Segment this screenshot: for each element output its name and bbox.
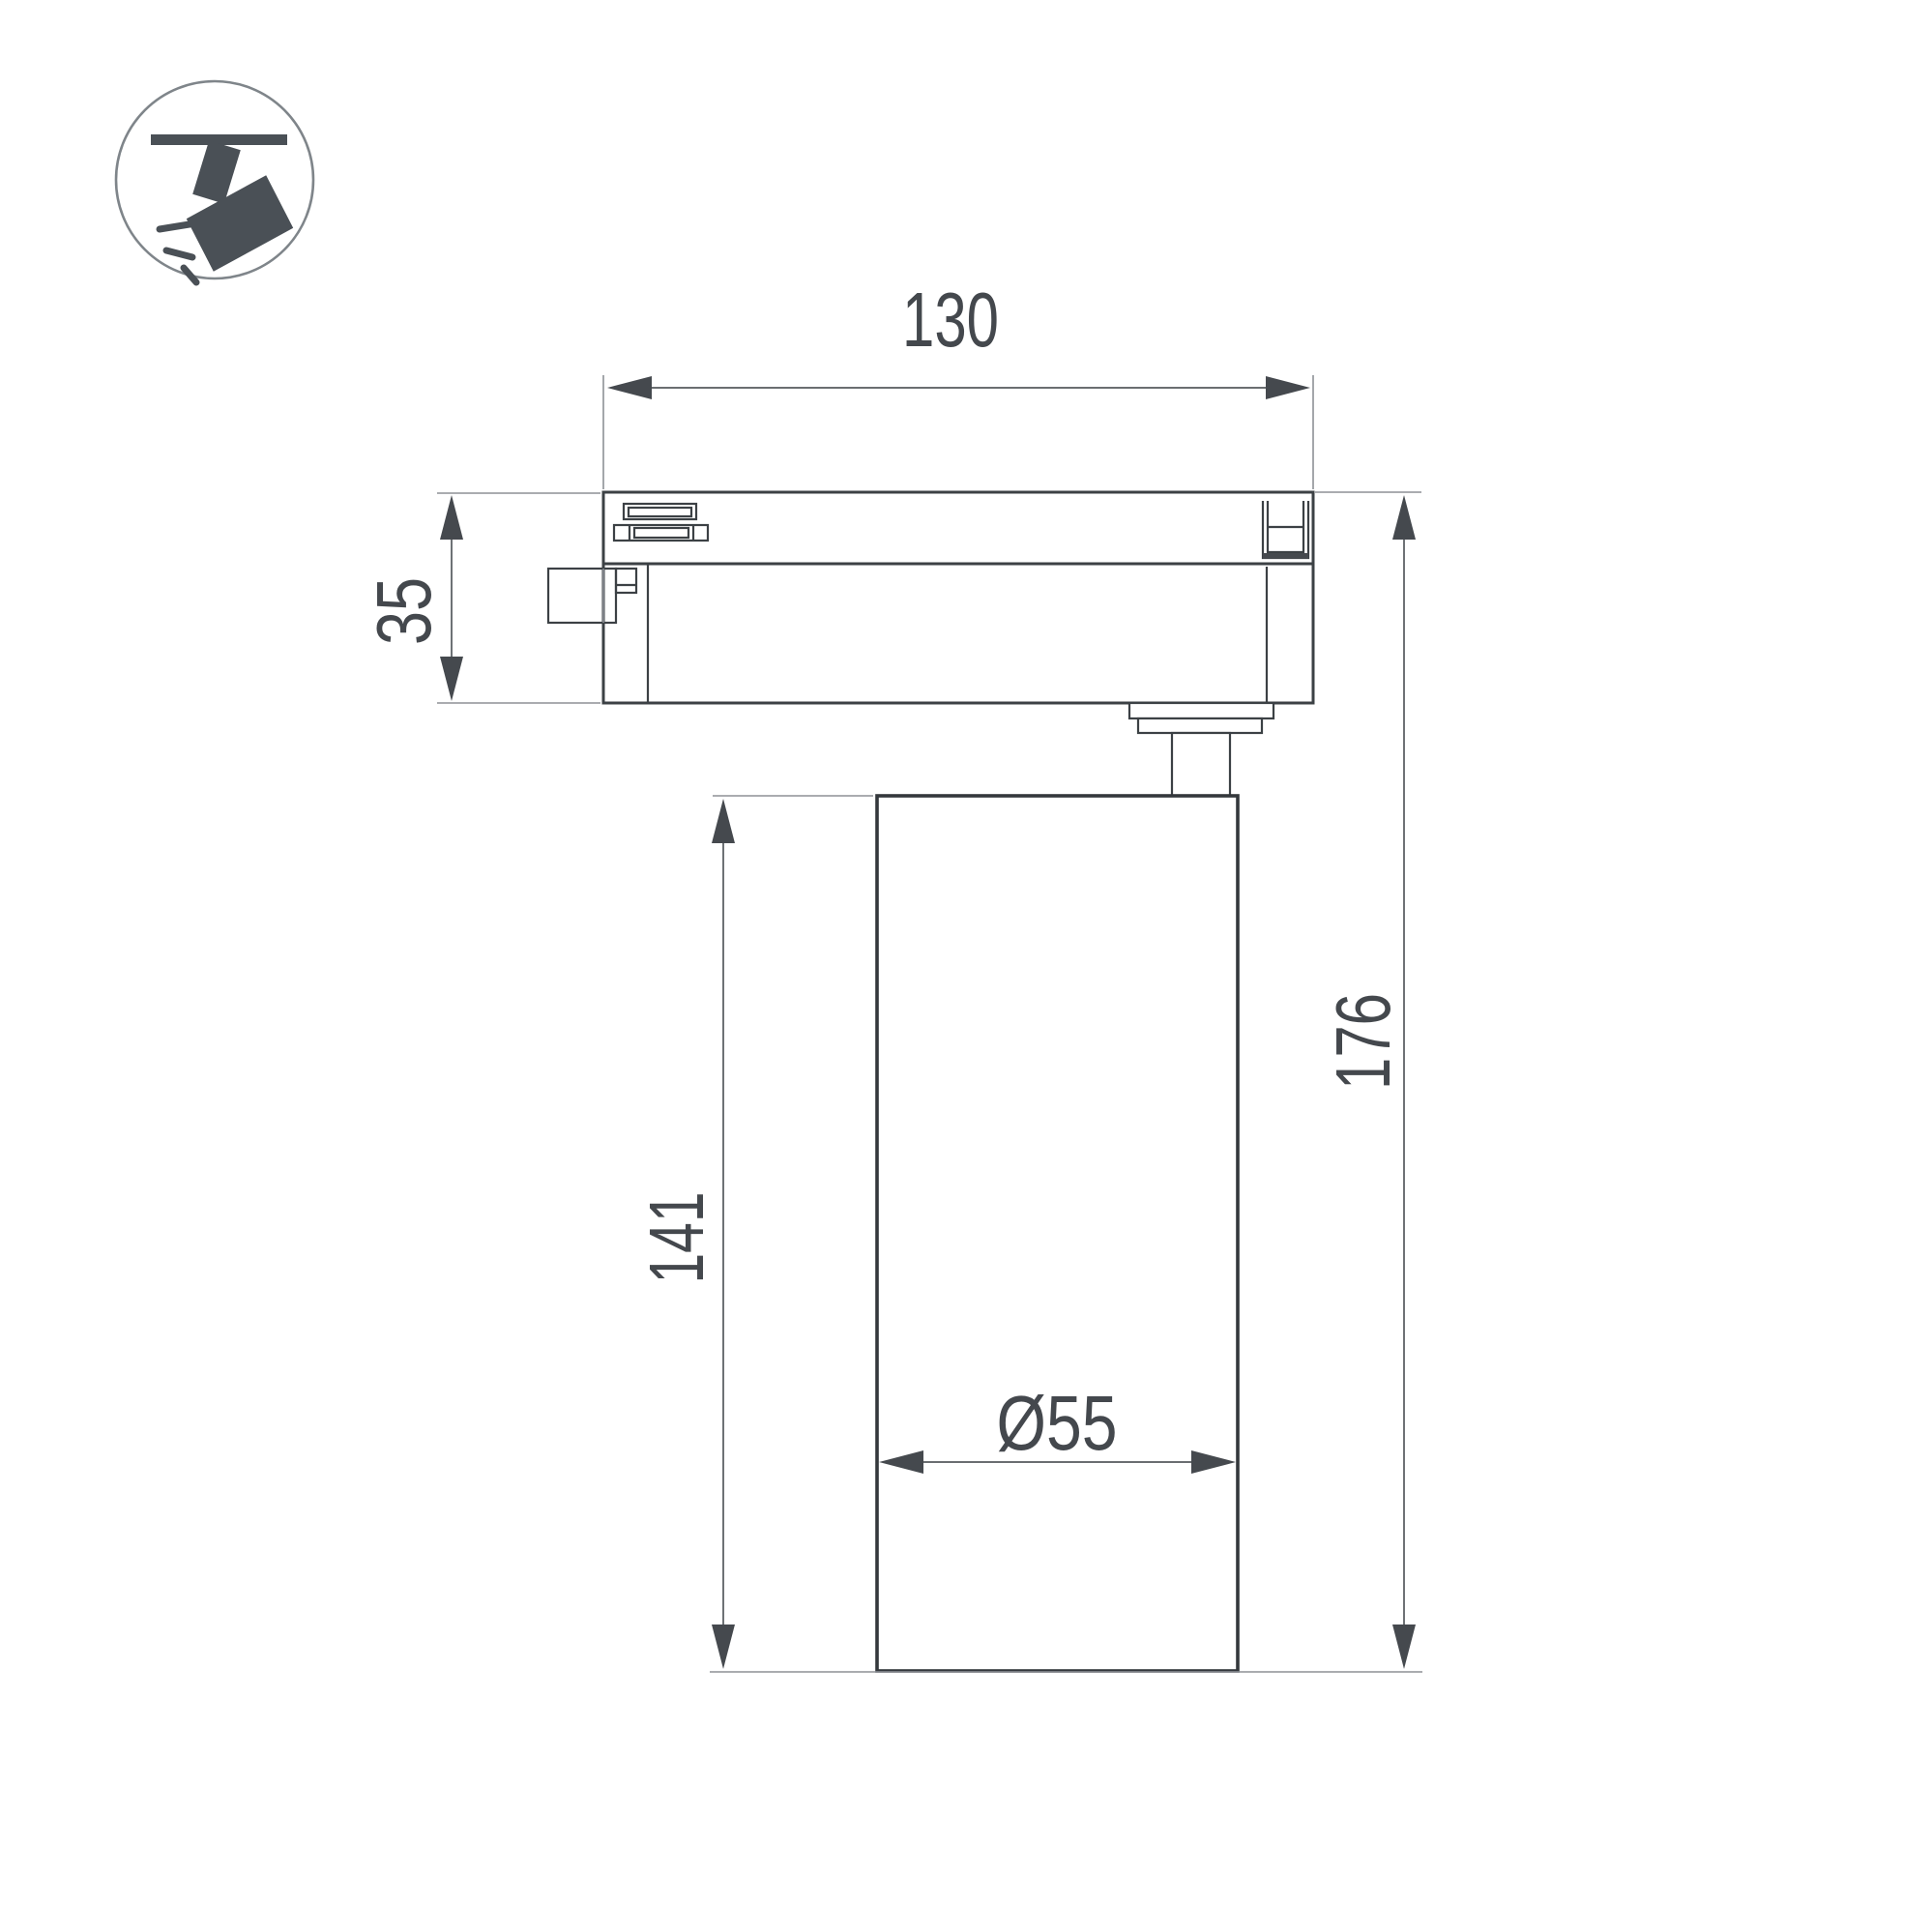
adapter-top-plate (603, 492, 1313, 564)
arrowhead-down (440, 657, 463, 701)
swivel-neck (1129, 703, 1273, 796)
dimension-label-adapter-height: 35 (361, 577, 447, 645)
lamp-body (877, 796, 1238, 1671)
track-adapter-outline (548, 492, 1313, 703)
adapter-lower-housing (603, 564, 1313, 703)
arrowhead-left (607, 376, 652, 399)
arrowhead-down (712, 1625, 735, 1669)
dimension-label-body-height: 141 (633, 1192, 719, 1284)
adapter-lever-box (548, 569, 616, 623)
dimension-body-height-141: 141 (633, 796, 873, 1669)
dimension-label-total-height: 176 (1320, 993, 1406, 1090)
dimension-label-diameter: Ø55 (997, 1380, 1118, 1466)
dimension-width-130: 130 (603, 277, 1313, 489)
arrowhead-up (1392, 495, 1416, 540)
adapter-lever-step (616, 569, 636, 593)
arrowhead-up (440, 495, 463, 540)
track-spotlight-icon (116, 81, 313, 282)
neck-step-2 (1138, 718, 1262, 733)
neck-step-1 (1129, 703, 1273, 718)
dimension-drawing: 130 35 141 176 Ø55 (0, 0, 1932, 1932)
arrowhead-right (1266, 376, 1310, 399)
arrowhead-down (1392, 1625, 1416, 1669)
right-clip-base (1263, 553, 1308, 559)
dimension-label-width: 130 (902, 277, 999, 363)
icon-track-bar (151, 134, 287, 145)
neck-stem (1172, 733, 1230, 796)
dimension-total-height-176: 176 (1315, 492, 1421, 1669)
drawing-canvas: 130 35 141 176 Ø55 (0, 0, 1932, 1932)
arrowhead-up (712, 799, 735, 843)
